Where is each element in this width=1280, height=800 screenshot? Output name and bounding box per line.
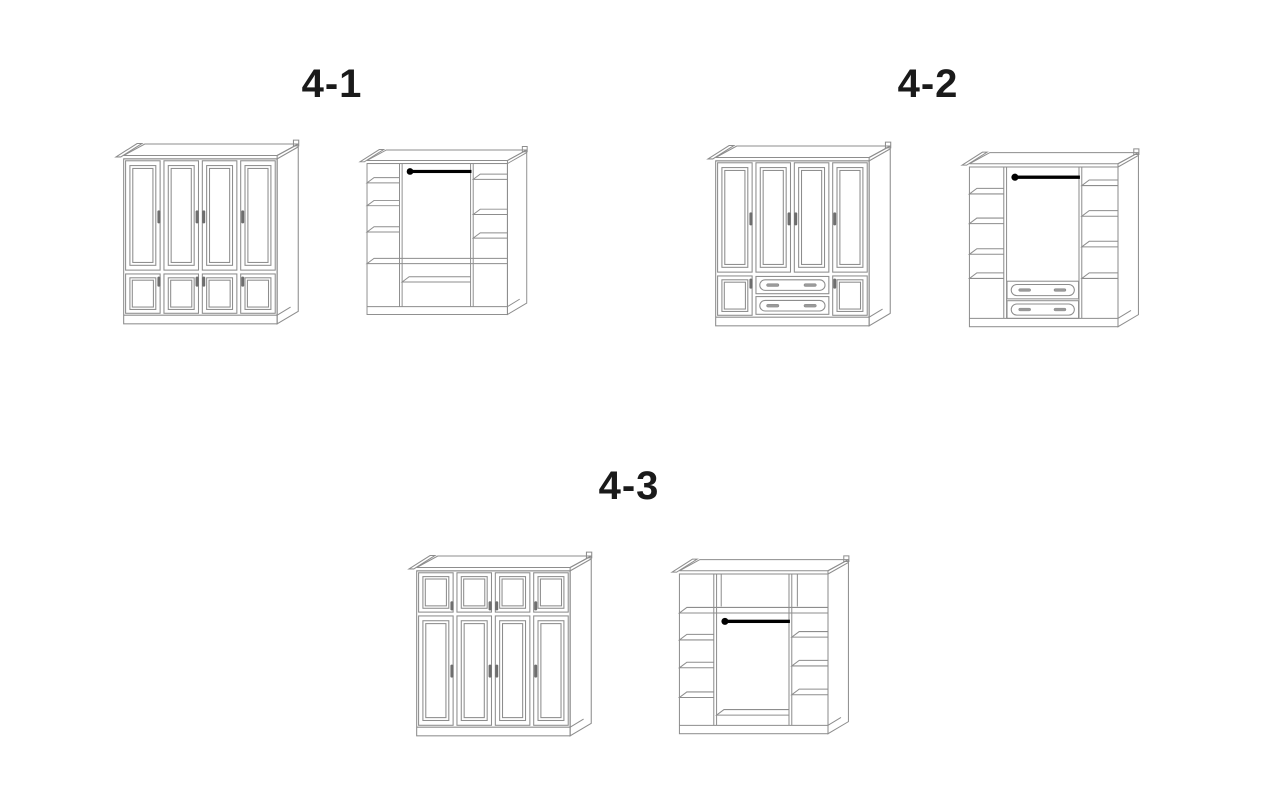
door-handles — [750, 213, 836, 289]
wardrobe-4-3-interior-drawing — [672, 548, 854, 754]
door-handles — [158, 211, 244, 287]
right-shelf-column — [473, 174, 507, 238]
wardrobe-4-2-interior-drawing — [962, 141, 1144, 347]
cabinet-frame — [672, 556, 849, 734]
hanging-rod-icon — [407, 168, 472, 175]
bottom-doors — [126, 274, 276, 313]
bottom-side-doors — [718, 276, 868, 315]
right-shelf-column — [792, 632, 828, 695]
wardrobe-exterior-icon — [409, 544, 597, 757]
drawers — [1007, 281, 1078, 318]
drawer-handles — [767, 284, 817, 307]
tall-doors — [718, 163, 868, 272]
left-shelf-column — [679, 634, 713, 697]
left-shelf-column — [969, 188, 1003, 278]
wardrobe-4-2-exterior-drawing — [708, 134, 896, 347]
group-label-4-1: 4-1 — [257, 64, 407, 104]
right-shelf-column — [1082, 180, 1118, 278]
tall-doors — [126, 161, 276, 270]
drawer-handles — [1019, 289, 1066, 311]
bottom-panel — [717, 710, 789, 716]
top-doors — [419, 573, 569, 612]
hanging-rod-icon — [721, 618, 790, 625]
wardrobe-4-1-exterior-drawing — [116, 132, 304, 345]
wardrobe-exterior-icon — [708, 134, 896, 347]
bottom-shelves — [367, 258, 507, 282]
top-shelf — [679, 607, 828, 613]
group-label-4-3: 4-3 — [554, 466, 704, 506]
wardrobe-interior-icon — [672, 548, 854, 754]
wardrobe-4-3-exterior-drawing — [409, 544, 597, 757]
wardrobe-interior-icon — [962, 141, 1144, 347]
wardrobe-interior-icon — [360, 139, 532, 334]
group-label-4-2: 4-2 — [853, 64, 1003, 104]
wardrobe-exterior-icon — [116, 132, 304, 345]
left-shelf-column — [367, 178, 399, 232]
hanging-rod-icon — [1011, 174, 1080, 181]
tall-doors — [419, 616, 569, 725]
wardrobe-4-1-interior-drawing — [360, 139, 532, 334]
drawers — [756, 276, 829, 314]
vertical-dividers — [714, 574, 798, 725]
vertical-dividers — [399, 164, 473, 307]
door-handles — [451, 602, 537, 678]
